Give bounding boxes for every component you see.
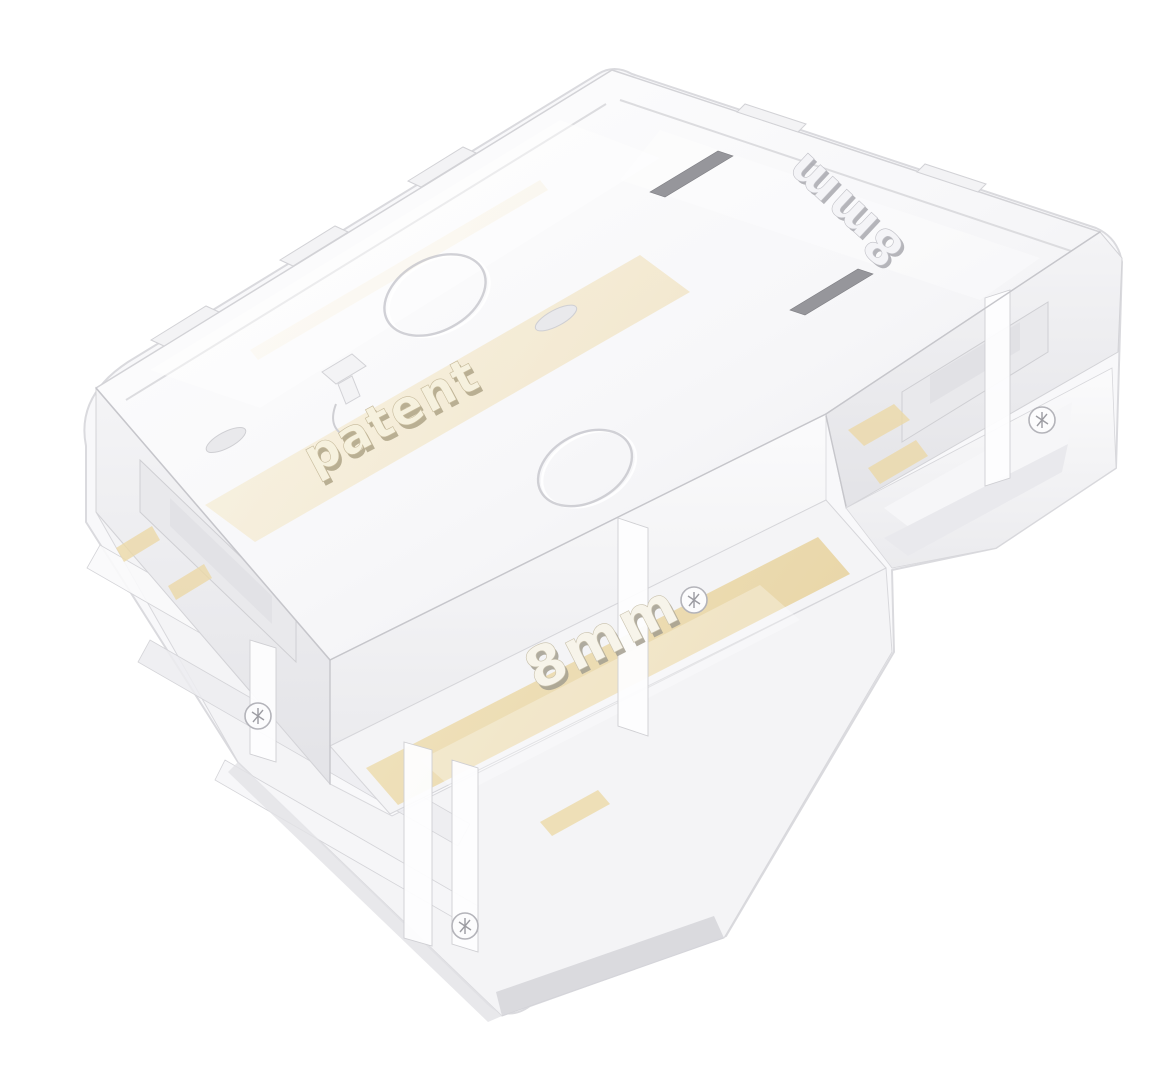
- clip-post: [250, 640, 276, 762]
- rivet: [245, 703, 271, 729]
- rivet: [452, 913, 478, 939]
- clip-post: [404, 742, 432, 946]
- rivet: [681, 587, 707, 613]
- clip-post: [985, 290, 1010, 486]
- connector-illustration: patent patent 8mm 8mm 8mm 8mm: [0, 0, 1171, 1073]
- product-photo: patent patent 8mm 8mm 8mm 8mm: [0, 0, 1171, 1073]
- page: { "page": { "background_color": "#ffffff…: [0, 0, 1171, 1073]
- rivet: [1029, 407, 1055, 433]
